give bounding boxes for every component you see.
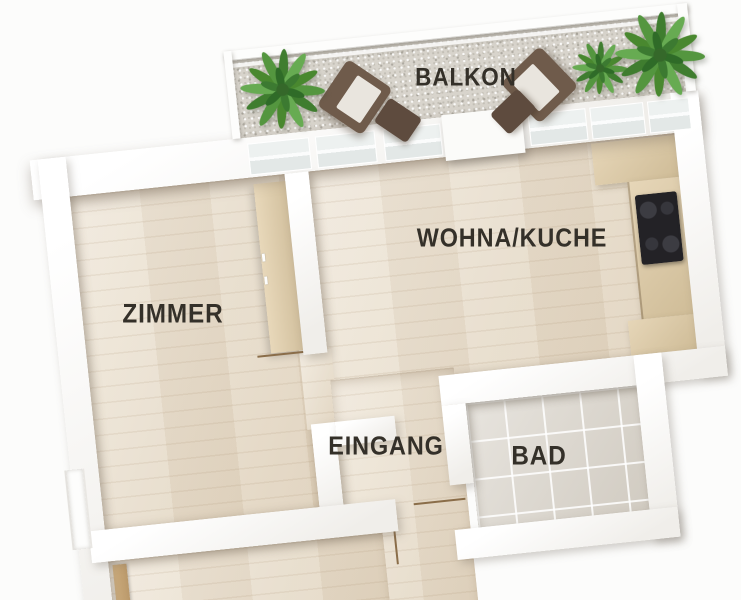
room-label-zimmer: ZIMMER: [122, 299, 223, 330]
room-label-bad: BAD: [511, 441, 566, 472]
cooktop: [635, 191, 684, 265]
potted-plant-icon: [605, 0, 715, 110]
room-label-balkon: BALKON: [415, 64, 517, 93]
room-label-wohn-kueche: WOHNA/KUCHE: [417, 223, 608, 254]
potted-plant-icon: [231, 38, 334, 141]
balcony-window-pane: [315, 130, 378, 168]
apartment-plan: [0, 0, 741, 600]
balcony-window-pane: [247, 137, 312, 175]
floorplan-render: BALKON WOHNA/KUCHE ZIMMER EINGANG BAD: [0, 0, 741, 600]
room-label-eingang: EINGANG: [328, 431, 444, 462]
